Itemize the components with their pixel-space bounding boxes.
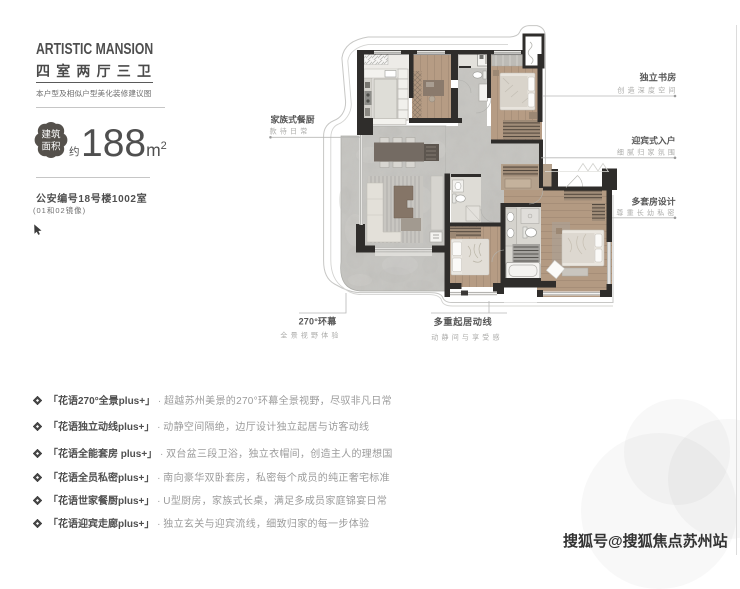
svg-text:多套房设计: 多套房设计 (632, 196, 676, 207)
svg-text:创造深度空间: 创造深度空间 (617, 86, 678, 95)
svg-text:迎宾式入户: 迎宾式入户 (632, 135, 676, 146)
svg-text:款待日常: 款待日常 (270, 127, 311, 136)
svg-text:动静间与享受感: 动静间与享受感 (431, 333, 502, 342)
svg-text:尊重长幼私密: 尊重长幼私密 (616, 208, 677, 217)
svg-text:270°环幕: 270°环幕 (299, 316, 338, 327)
svg-text:细腻归家氛围: 细腻归家氛围 (617, 148, 678, 157)
svg-text:独立书房: 独立书房 (639, 72, 677, 83)
svg-text:多重起居动线: 多重起居动线 (434, 316, 493, 327)
svg-text:家族式餐厨: 家族式餐厨 (271, 114, 315, 125)
svg-text:全景视野体验: 全景视野体验 (280, 331, 341, 340)
